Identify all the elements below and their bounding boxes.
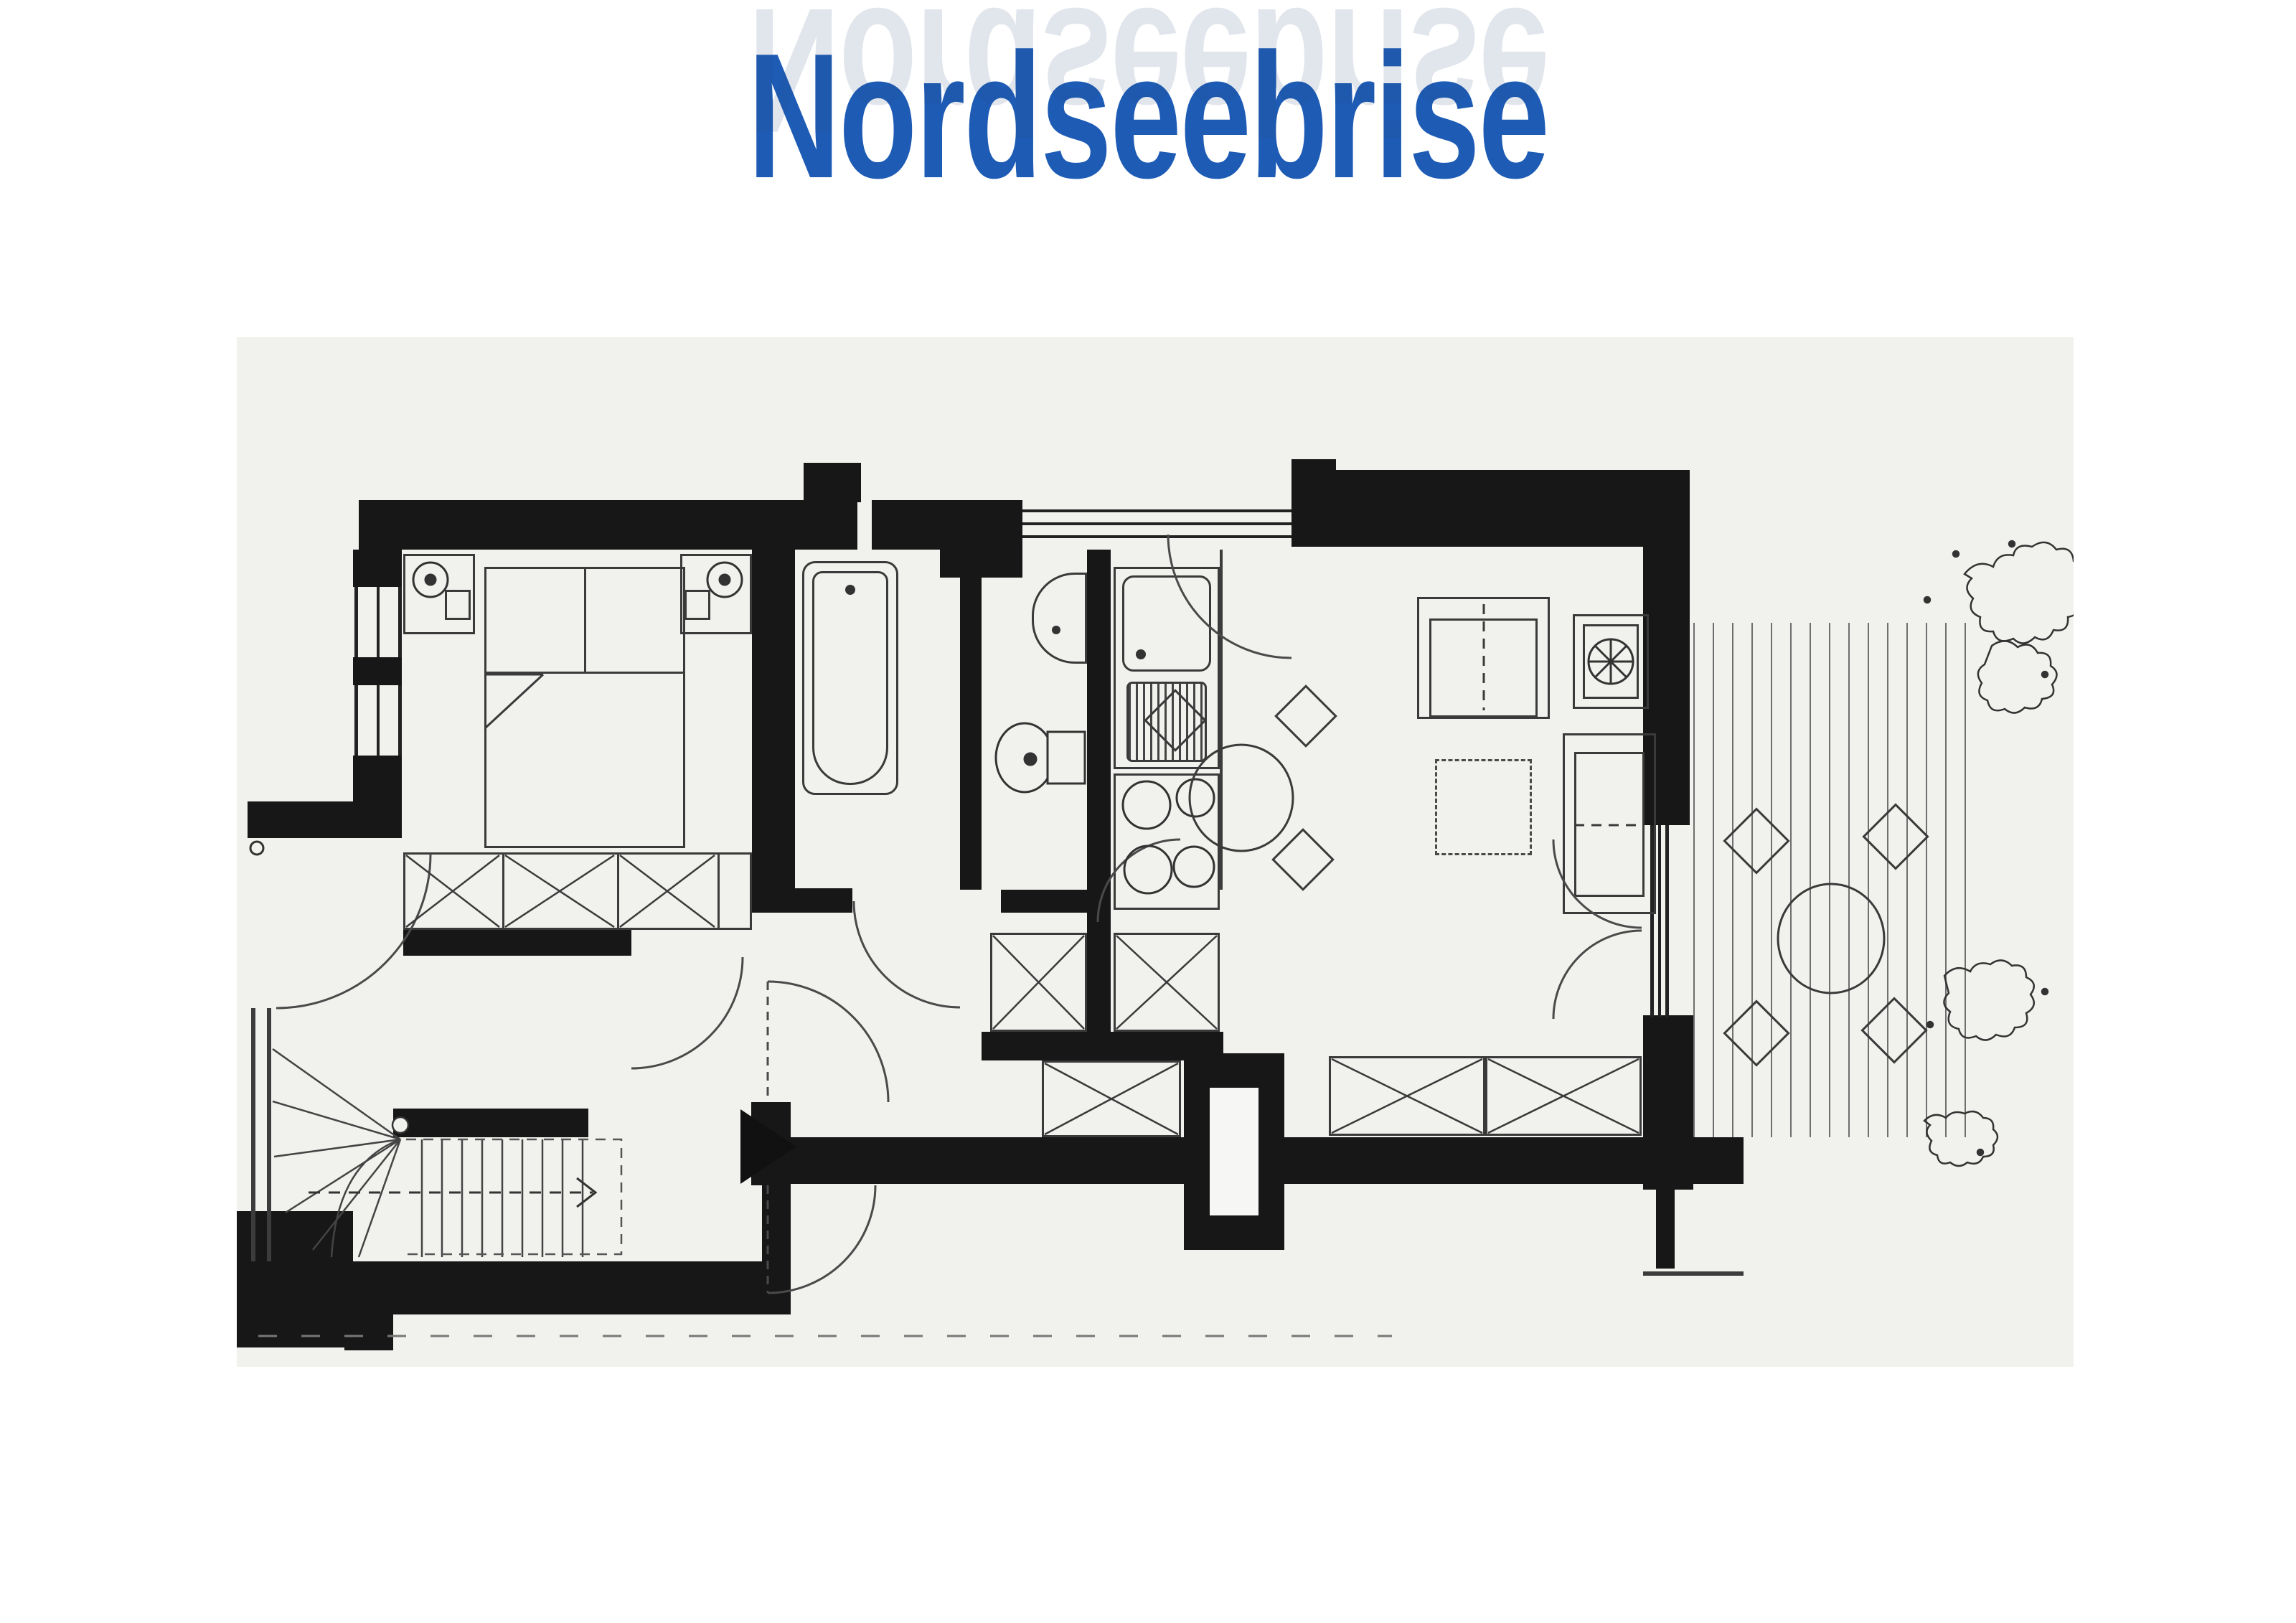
terrace-door-lower — [1553, 931, 1642, 1019]
winder-staircase — [273, 1049, 621, 1257]
bed-fold — [486, 674, 543, 728]
furniture-dashes — [1484, 604, 1645, 825]
door-bedroom — [631, 957, 743, 1068]
toilet — [996, 723, 1085, 792]
bush-top — [1965, 542, 2074, 644]
basin-tap — [1052, 626, 1060, 634]
sink-drain — [1136, 649, 1146, 659]
tub-faucet — [845, 585, 855, 595]
terrace-door-upper — [1553, 839, 1642, 928]
page: { "title": { "text": "Nordseebrise", "co… — [0, 0, 2296, 1623]
terrace-table — [1778, 884, 1884, 993]
stove-burners — [1123, 779, 1214, 893]
cabinet-crosses — [406, 855, 1639, 1134]
dining-table — [1190, 745, 1293, 851]
bush-bottom — [1944, 960, 2033, 1040]
door-bathroom — [854, 901, 960, 1007]
reflection-fade — [0, 187, 2296, 352]
door-entry-lower — [768, 1185, 875, 1293]
entrance-arrow — [740, 1109, 796, 1184]
lamp-symbols — [413, 563, 742, 597]
page-title-reflection: Nordseebrise — [321, 0, 1975, 174]
hall-corner-dot — [250, 842, 263, 855]
plants — [1924, 541, 2074, 1166]
door-living-top — [1168, 535, 1291, 658]
floor-plan — [237, 337, 2074, 1367]
fan-wheel-icon — [1589, 639, 1633, 684]
door-stairhall — [276, 854, 430, 1008]
plan-linework — [237, 337, 2074, 1367]
bush-bottom-2 — [1924, 1111, 1998, 1166]
door-entry-upper — [768, 982, 888, 1102]
